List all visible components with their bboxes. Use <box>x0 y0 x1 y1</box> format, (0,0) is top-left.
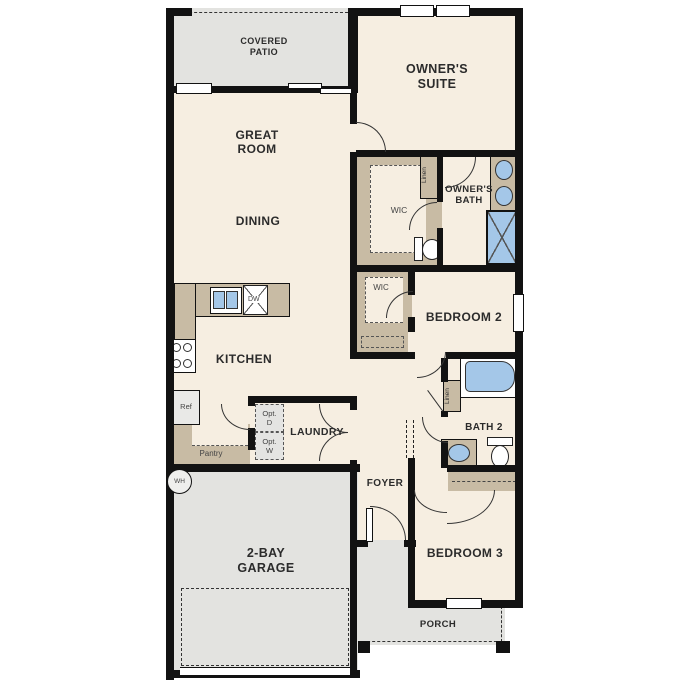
refrigerator: Ref <box>172 390 200 425</box>
owners-suite-label: OWNER'S SUITE <box>377 62 497 92</box>
opt-washer-label-2: W <box>256 446 283 455</box>
patio-slider-b <box>320 88 352 94</box>
wall-garage-north <box>166 464 360 472</box>
bedroom2-label: BEDROOM 2 <box>404 310 524 324</box>
patio-window <box>176 83 212 94</box>
wall-laundry-west-b <box>248 428 255 450</box>
front-door-leaf <box>366 508 373 542</box>
wall-owners-wic-east-b <box>437 228 443 265</box>
refrigerator-label: Ref <box>180 402 192 411</box>
wall-patio-right <box>348 8 358 92</box>
patio-slider-a <box>288 83 322 89</box>
wall-patio-stub <box>166 8 192 16</box>
bath2-tub-deck <box>460 356 520 398</box>
kitchen-sink <box>210 287 242 314</box>
patio-edge-dashed <box>174 12 348 13</box>
burner <box>183 343 192 352</box>
sink-basin-left <box>213 291 225 309</box>
floor-plan: DW Ref Opt. D Opt. W WH Linen Linen <box>0 0 687 687</box>
dining-label: DINING <box>198 214 318 228</box>
sink-basin-right <box>226 291 238 309</box>
garage-door <box>180 667 350 676</box>
laundry-label: LAUNDRY <box>257 426 377 439</box>
bedroom3-label: BEDROOM 3 <box>405 546 525 560</box>
wall-bath2-west-c <box>441 441 448 467</box>
porch-stub-left <box>358 641 370 653</box>
great-room-label: GREAT ROOM <box>197 128 317 157</box>
hall-closet-shelf-dashed <box>361 336 404 348</box>
dishwasher: DW <box>243 285 268 315</box>
pantry-label: Pantry <box>171 449 251 459</box>
wall-garage-east <box>350 460 357 678</box>
water-heater: WH <box>167 469 192 494</box>
bath2-linen-closet: Linen <box>443 380 461 412</box>
opt-dryer-label-1: Opt. <box>256 409 283 418</box>
bath2-label: BATH 2 <box>434 422 534 434</box>
garage-label: 2-BAY GARAGE <box>196 546 336 576</box>
owners-shower <box>486 210 518 265</box>
wall-greatroom-suite <box>350 92 357 124</box>
wall-bedroom2-south <box>446 352 523 359</box>
bath2-sink <box>448 444 470 462</box>
bedroom3-window <box>446 598 482 609</box>
wall-hallcloset-south <box>350 352 415 359</box>
bath2-tub <box>465 361 515 392</box>
porch-stub-right <box>496 641 510 653</box>
dishwasher-label: DW <box>247 296 261 303</box>
bedroom2-wic-label: WIC <box>351 283 411 293</box>
wall-hall-west-stub <box>350 396 357 410</box>
water-heater-label: WH <box>174 478 185 485</box>
owners-wic-label: WIC <box>369 205 429 215</box>
wall-laundry-north <box>248 396 350 403</box>
bedroom3-closet-shelf-dashed <box>452 481 516 482</box>
covered-patio-label: COVERED PATIO <box>204 36 324 58</box>
wall-hall-west <box>350 152 357 358</box>
owners-suite-window-1 <box>400 5 434 17</box>
owners-bath-label: OWNER'S BATH <box>429 184 509 207</box>
wall-bedroom3-south-b <box>480 600 523 608</box>
wall-bedroom3-south-a <box>408 600 448 608</box>
owners-suite-window-2 <box>436 5 470 17</box>
wall-left-exterior <box>166 8 174 680</box>
garage-apron-dashed <box>181 588 349 666</box>
porch-label: PORCH <box>388 619 488 630</box>
owners-sink-1 <box>495 160 513 180</box>
hall-cased-opening-dashed <box>406 420 414 458</box>
kitchen-label: KITCHEN <box>184 352 304 366</box>
kitchen-counter-left <box>174 283 196 341</box>
bath2-linen-label: Linen <box>444 381 460 411</box>
foyer-label: FOYER <box>335 478 435 490</box>
wall-bedroom3-closet-north <box>447 465 523 472</box>
wall-bedroom2-north <box>356 265 523 272</box>
